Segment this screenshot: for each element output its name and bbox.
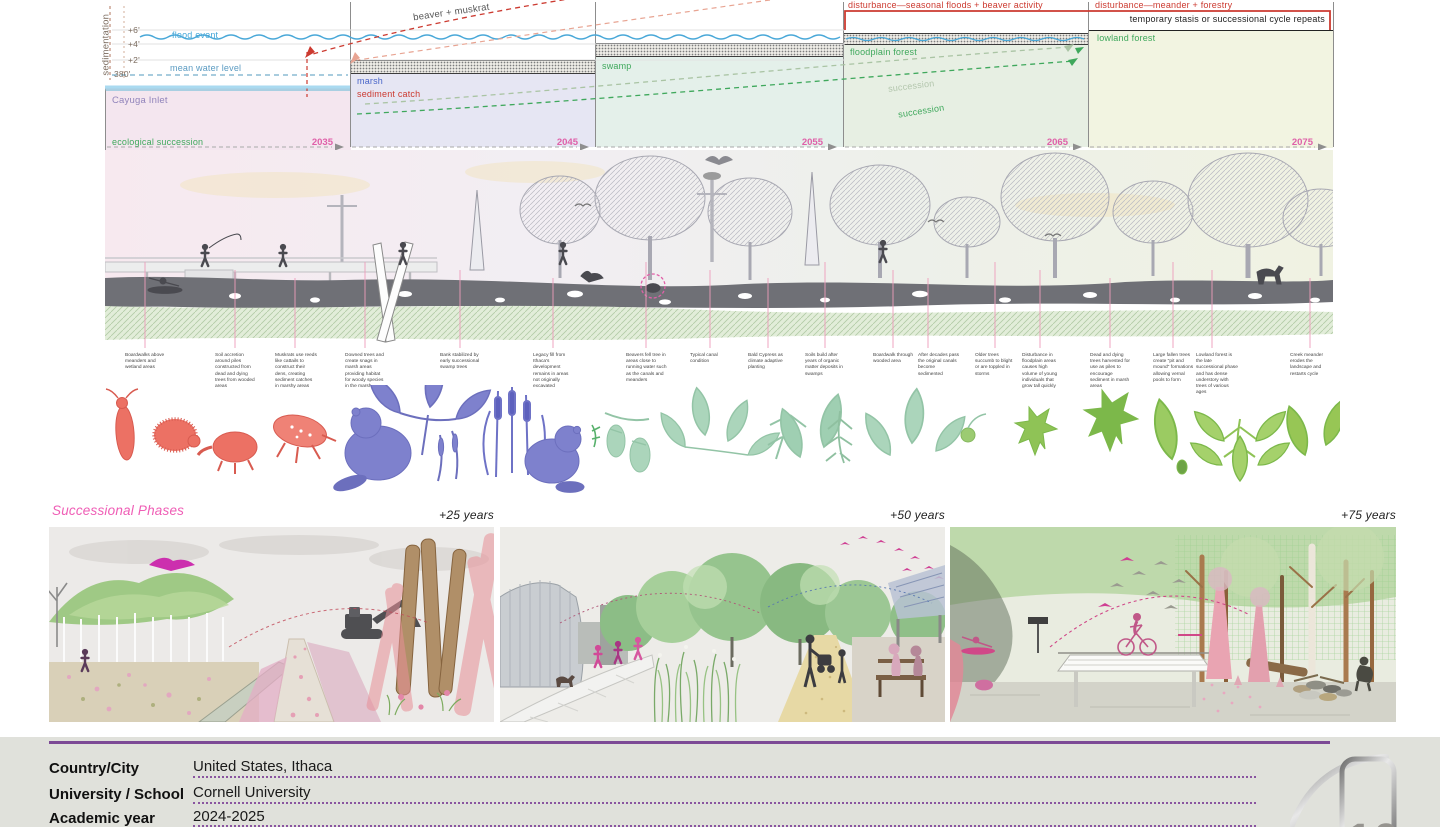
footer-value-country: United States, Ithaca [193, 758, 332, 775]
disturbance-label-1: disturbance—seasonal floods + beaver act… [848, 1, 1043, 10]
logo-number: 10 [1346, 815, 1399, 827]
section-annotation: Soils build after years of organic matte… [805, 353, 847, 378]
section-annotation: Creek meander erodes the landscape and r… [1290, 353, 1332, 378]
axis-label-sedimentation: sedimentation [101, 5, 111, 85]
footer-dotted-rule [193, 776, 1256, 778]
sediment-catch-label: sediment catch [357, 90, 420, 99]
timeline-date-2045: 2045 [538, 137, 578, 148]
diagram-linework [0, 0, 1440, 160]
footer-value-academic-year: 2024-2025 [193, 808, 265, 825]
beaver-pink-icon [975, 680, 993, 691]
render-25-years [49, 527, 494, 722]
disturbance-label-2: disturbance—meander + forestry [1095, 1, 1232, 10]
poster-page: sedimentation +6' +4' +2' 380' flood eve… [0, 0, 1440, 827]
competition-logo: 10 [1290, 745, 1405, 827]
ecological-succession-label: ecological succession [112, 138, 203, 147]
insects-icon [106, 389, 336, 474]
axis-tick: +2' [128, 56, 140, 65]
phase-label-cayuga-inlet: Cayuga Inlet [112, 96, 168, 106]
render-label-75-years: +75 years [1296, 509, 1396, 521]
phase-label-lowland-forest: lowland forest [1097, 34, 1155, 43]
section-annotation: After decades pass the original canals b… [918, 353, 960, 378]
render-50-years [500, 527, 945, 722]
footer-dotted-rule [193, 802, 1256, 804]
render-label-25-years: +25 years [394, 509, 494, 521]
phase-label-swamp: swamp [602, 62, 632, 71]
phase-label-marsh: marsh [357, 77, 383, 86]
flood-event-wave [140, 35, 840, 39]
section-annotation: Boardwalks above meanders and wetland ar… [125, 353, 167, 372]
footer-label-academic-year: Academic year [49, 810, 155, 827]
flood-event-label: flood event [172, 31, 218, 40]
bright-leaves-icon [1015, 390, 1340, 481]
section-illustration [105, 150, 1333, 350]
beavers-icon [332, 385, 584, 494]
green-sprig-icon [592, 425, 600, 447]
timeline-date-2035: 2035 [293, 137, 333, 148]
section-annotation: Bald Cypress as climate adaptive plantin… [748, 353, 790, 372]
footer-label-country: Country/City [49, 760, 139, 777]
section-annotation: Typical canal condition [690, 353, 732, 365]
section-annotation: Large fallen trees create "pit and mound… [1153, 353, 1195, 384]
axis-tick: +6' [128, 26, 140, 35]
species-strip [100, 385, 1340, 503]
timeline-date-2075: 2075 [1273, 137, 1313, 148]
section-annotation: Beavers fell tree in areas close to runn… [626, 353, 668, 384]
timeline-date-2065: 2065 [1028, 137, 1068, 148]
stasis-label: temporary stasis or successional cycle r… [1025, 15, 1325, 24]
footer-accent-rule [49, 741, 1330, 744]
axis-tick: 380' [114, 70, 131, 79]
mean-water-level-label: mean water level [170, 64, 241, 73]
successional-phases-title: Successional Phases [52, 504, 184, 518]
section-annotation: Bank stabilized by early successional sw… [440, 353, 482, 372]
phase-label-floodplain-forest: floodplain forest [850, 48, 917, 57]
timeline-date-2055: 2055 [783, 137, 823, 148]
render-75-years [950, 527, 1396, 722]
footer-label-university: University / School [49, 786, 184, 803]
axis-tick: +4' [128, 40, 140, 49]
section-annotation: Boardwalk through wooded area [873, 353, 915, 365]
section-annotation: Older trees succumb to blight or are top… [975, 353, 1017, 378]
render-label-50-years: +50 years [845, 509, 945, 521]
footer-value-university: Cornell University [193, 784, 311, 801]
pale-leaves-icon [605, 386, 986, 472]
